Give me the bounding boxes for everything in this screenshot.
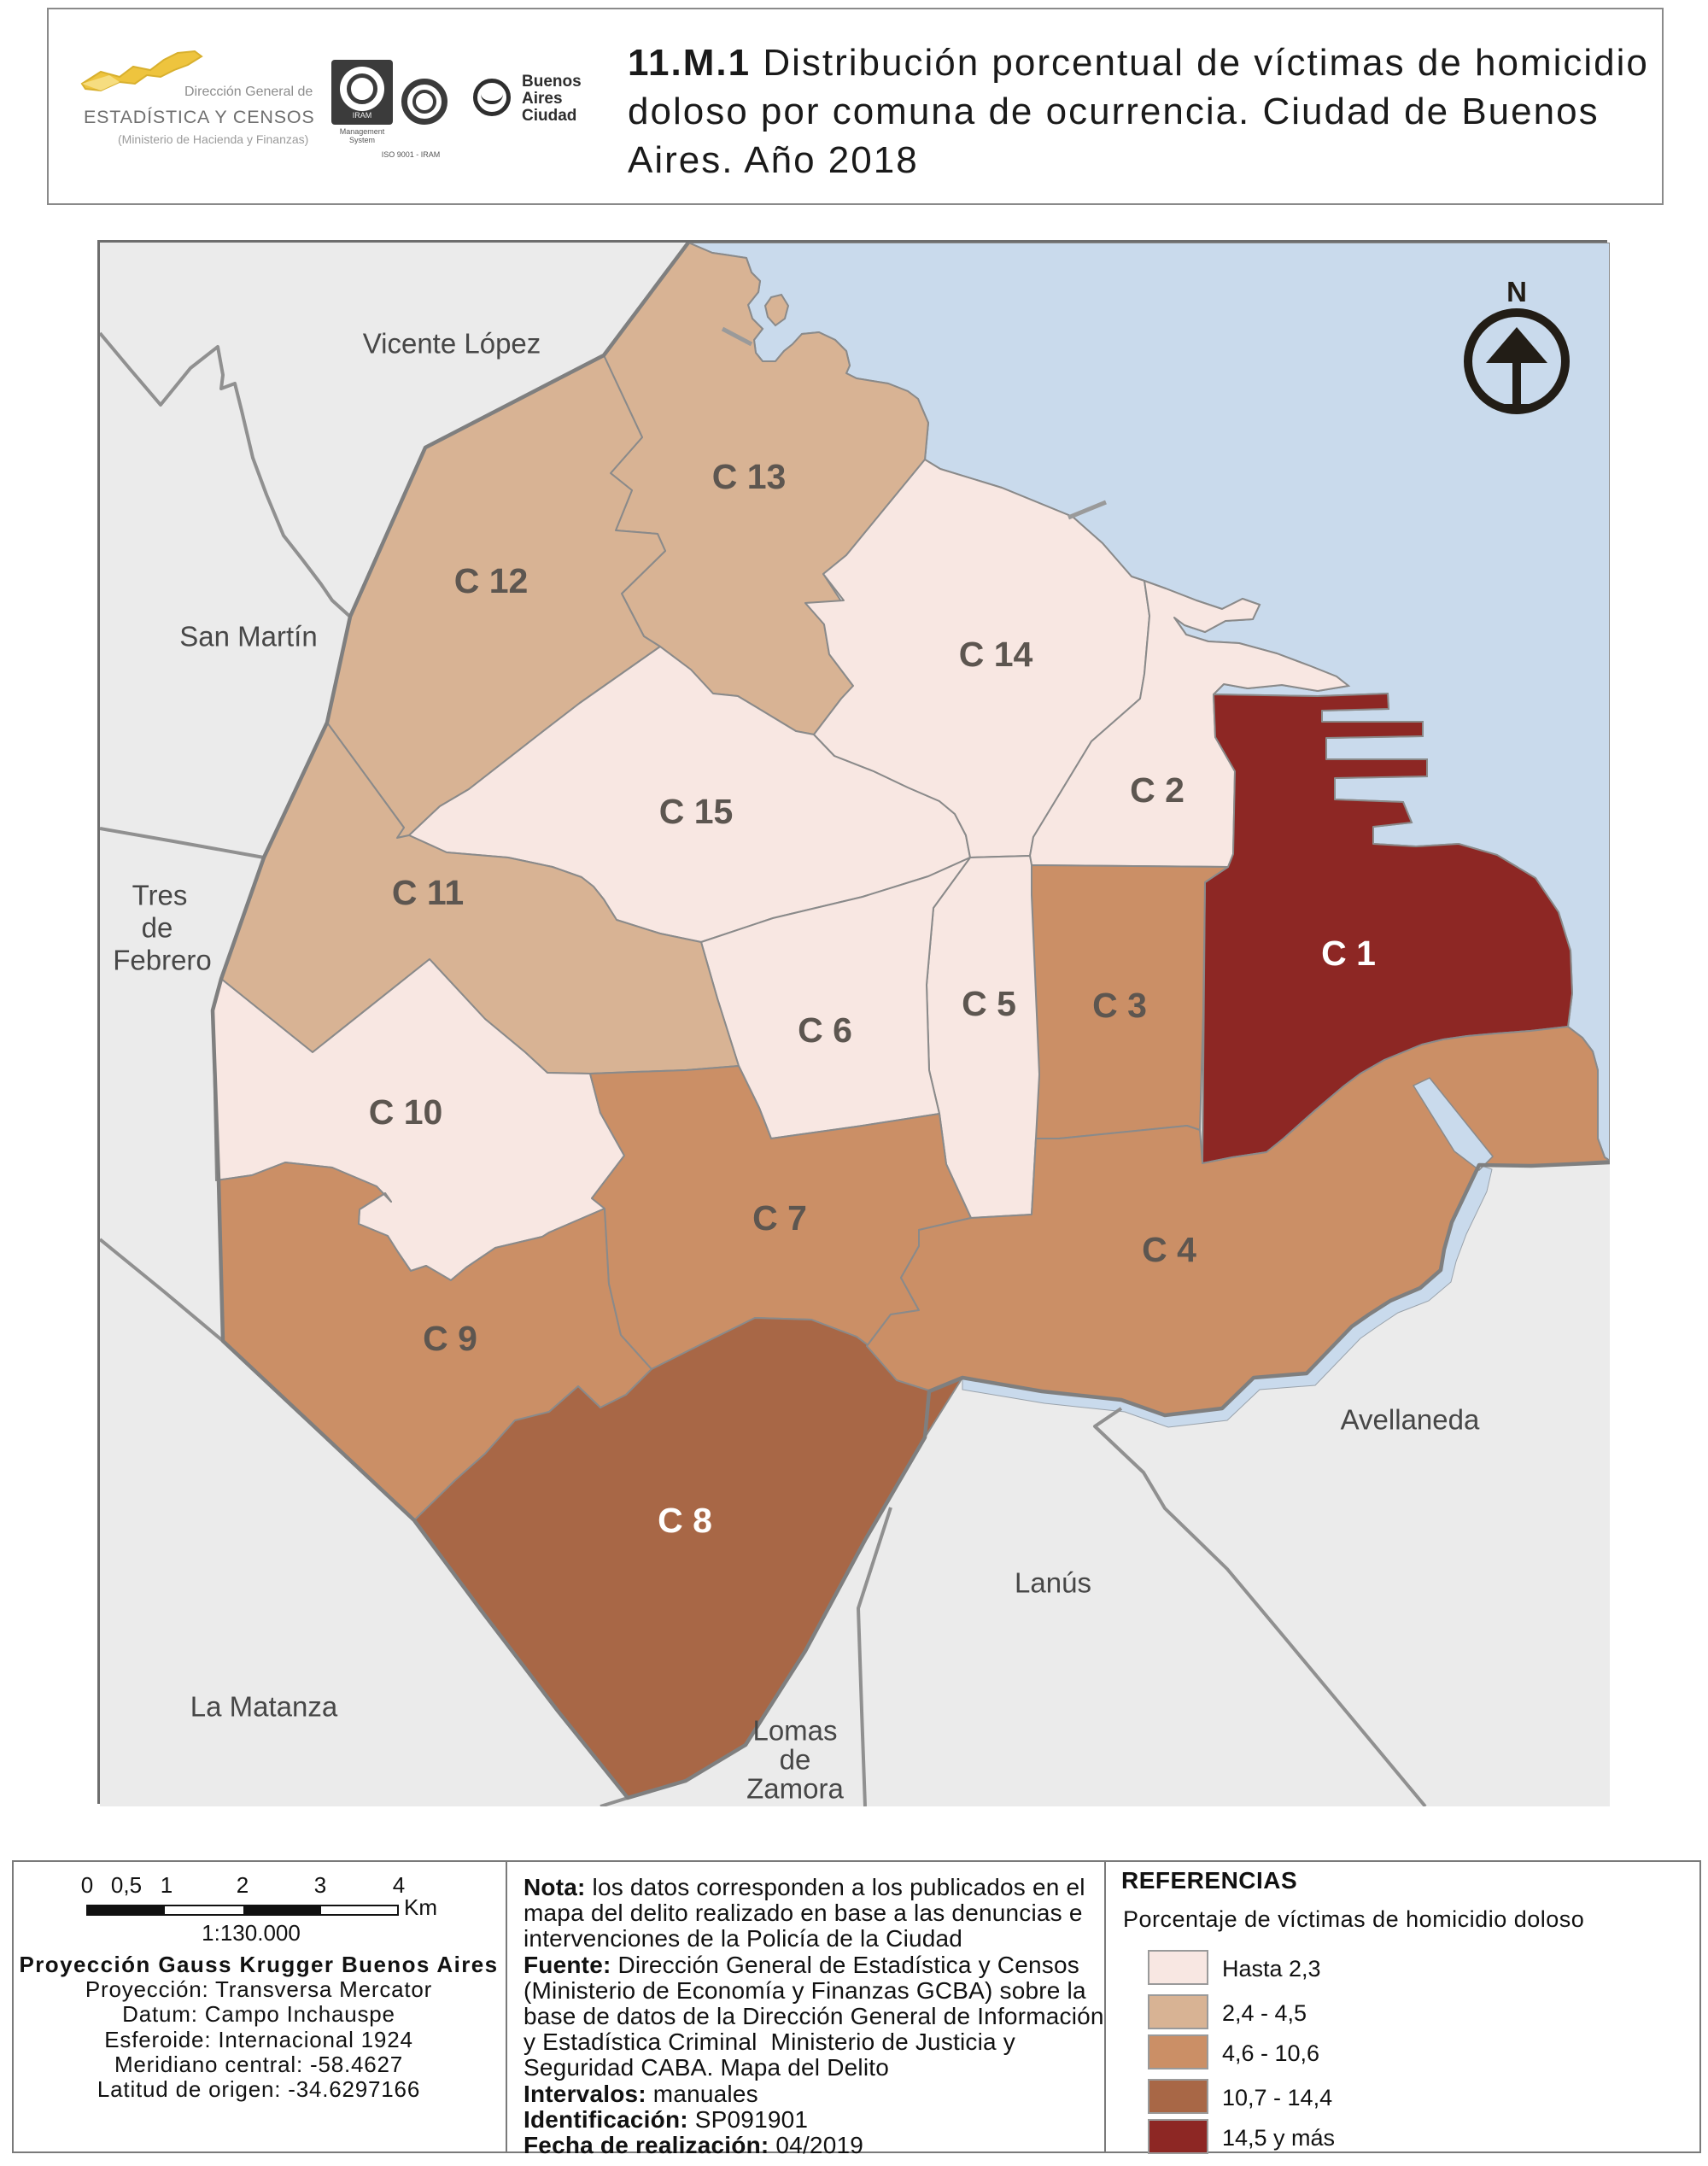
svg-text:de: de — [780, 1744, 811, 1776]
svg-text:C 11: C 11 — [392, 873, 464, 912]
svg-text:C 3: C 3 — [1092, 986, 1147, 1025]
svg-text:de: de — [142, 912, 173, 944]
svg-text:C 12: C 12 — [454, 561, 529, 600]
svg-text:C 10: C 10 — [369, 1092, 443, 1132]
svg-text:C 7: C 7 — [752, 1198, 807, 1238]
svg-text:San Martín: San Martín — [179, 621, 317, 653]
svg-text:C 8: C 8 — [658, 1501, 712, 1540]
svg-text:Febrero: Febrero — [113, 945, 212, 976]
svg-text:C 2: C 2 — [1130, 770, 1184, 810]
svg-text:N: N — [1506, 276, 1527, 307]
svg-text:Avellaneda: Avellaneda — [1341, 1404, 1480, 1436]
svg-text:(Ministerio de Hacienda y Fina: (Ministerio de Hacienda y Finanzas) — [118, 132, 308, 146]
svg-text:C 4: C 4 — [1142, 1230, 1196, 1269]
svg-text:Dirección General de: Dirección General de — [184, 85, 313, 99]
svg-text:C 14: C 14 — [959, 635, 1033, 674]
svg-text:ESTADÍSTICA Y CENSOS: ESTADÍSTICA Y CENSOS — [84, 106, 315, 127]
svg-text:Zamora: Zamora — [746, 1773, 844, 1805]
svg-text:C 15: C 15 — [659, 792, 734, 831]
svg-text:C 5: C 5 — [962, 984, 1016, 1023]
svg-text:La Matanza: La Matanza — [190, 1691, 338, 1723]
svg-text:C 13: C 13 — [712, 457, 787, 496]
svg-text:C 9: C 9 — [423, 1319, 477, 1358]
svg-text:Vicente López: Vicente López — [363, 328, 541, 360]
svg-text:C 6: C 6 — [798, 1010, 852, 1050]
svg-text:Lanús: Lanús — [1015, 1567, 1091, 1599]
svg-text:C 1: C 1 — [1321, 934, 1376, 973]
svg-text:Tres: Tres — [132, 880, 188, 911]
svg-text:Lomas: Lomas — [752, 1715, 837, 1747]
